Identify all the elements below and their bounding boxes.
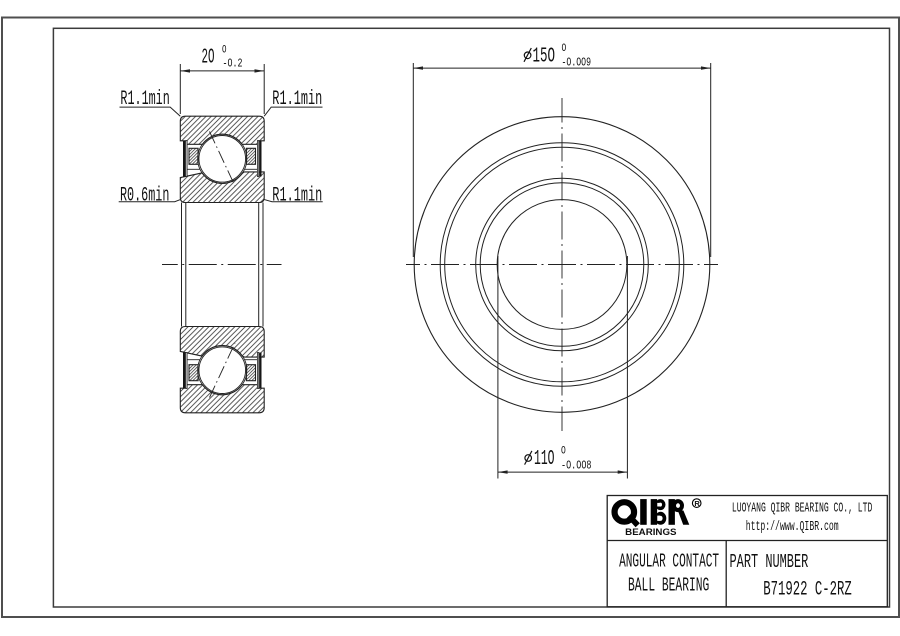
svg-text:O: O (562, 43, 567, 55)
svg-text:BEARINGS: BEARINGS (625, 527, 676, 537)
svg-text:-O.2: -O.2 (223, 58, 243, 71)
svg-text:O: O (561, 446, 566, 458)
svg-text:R: R (694, 499, 700, 508)
svg-text:-O.OO8: -O.OO8 (561, 460, 592, 473)
svg-text:B71922 C-2RZ: B71922 C-2RZ (763, 579, 852, 602)
svg-text:http://www.QIBR.com: http://www.QIBR.com (746, 519, 839, 535)
svg-text:ANGULAR CONTACT: ANGULAR CONTACT (619, 551, 719, 573)
svg-text:PART NUMBER: PART NUMBER (730, 551, 809, 573)
svg-text:O: O (222, 45, 227, 57)
svg-text:15O: 15O (533, 45, 556, 69)
svg-text:2O: 2O (202, 47, 215, 70)
svg-text:R1.1min: R1.1min (272, 185, 322, 208)
svg-text:11O: 11O (534, 447, 555, 471)
svg-text:-O.OO9: -O.OO9 (562, 57, 592, 70)
svg-text:BALL BEARING: BALL BEARING (628, 575, 709, 597)
svg-text:R0.6min: R0.6min (120, 185, 169, 208)
svg-text:LUOYANG QIBR BEARING CO., LTD: LUOYANG QIBR BEARING CO., LTD (732, 502, 872, 517)
